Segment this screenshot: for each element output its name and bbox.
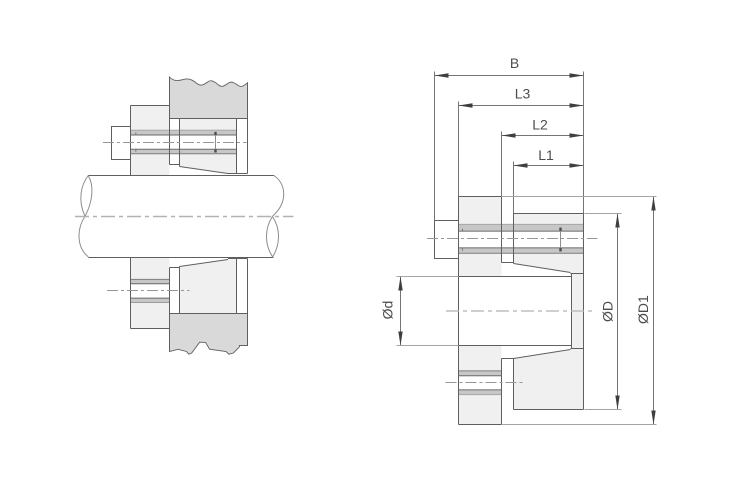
svg-text:L2: L2 [532,117,548,133]
svg-text:L3: L3 [515,86,531,102]
svg-text:Ød: Ød [380,301,396,320]
svg-text:ØD1: ØD1 [635,295,651,324]
svg-text:B: B [510,55,519,71]
svg-text:ØD: ØD [600,301,616,322]
svg-text:L1: L1 [538,147,554,163]
